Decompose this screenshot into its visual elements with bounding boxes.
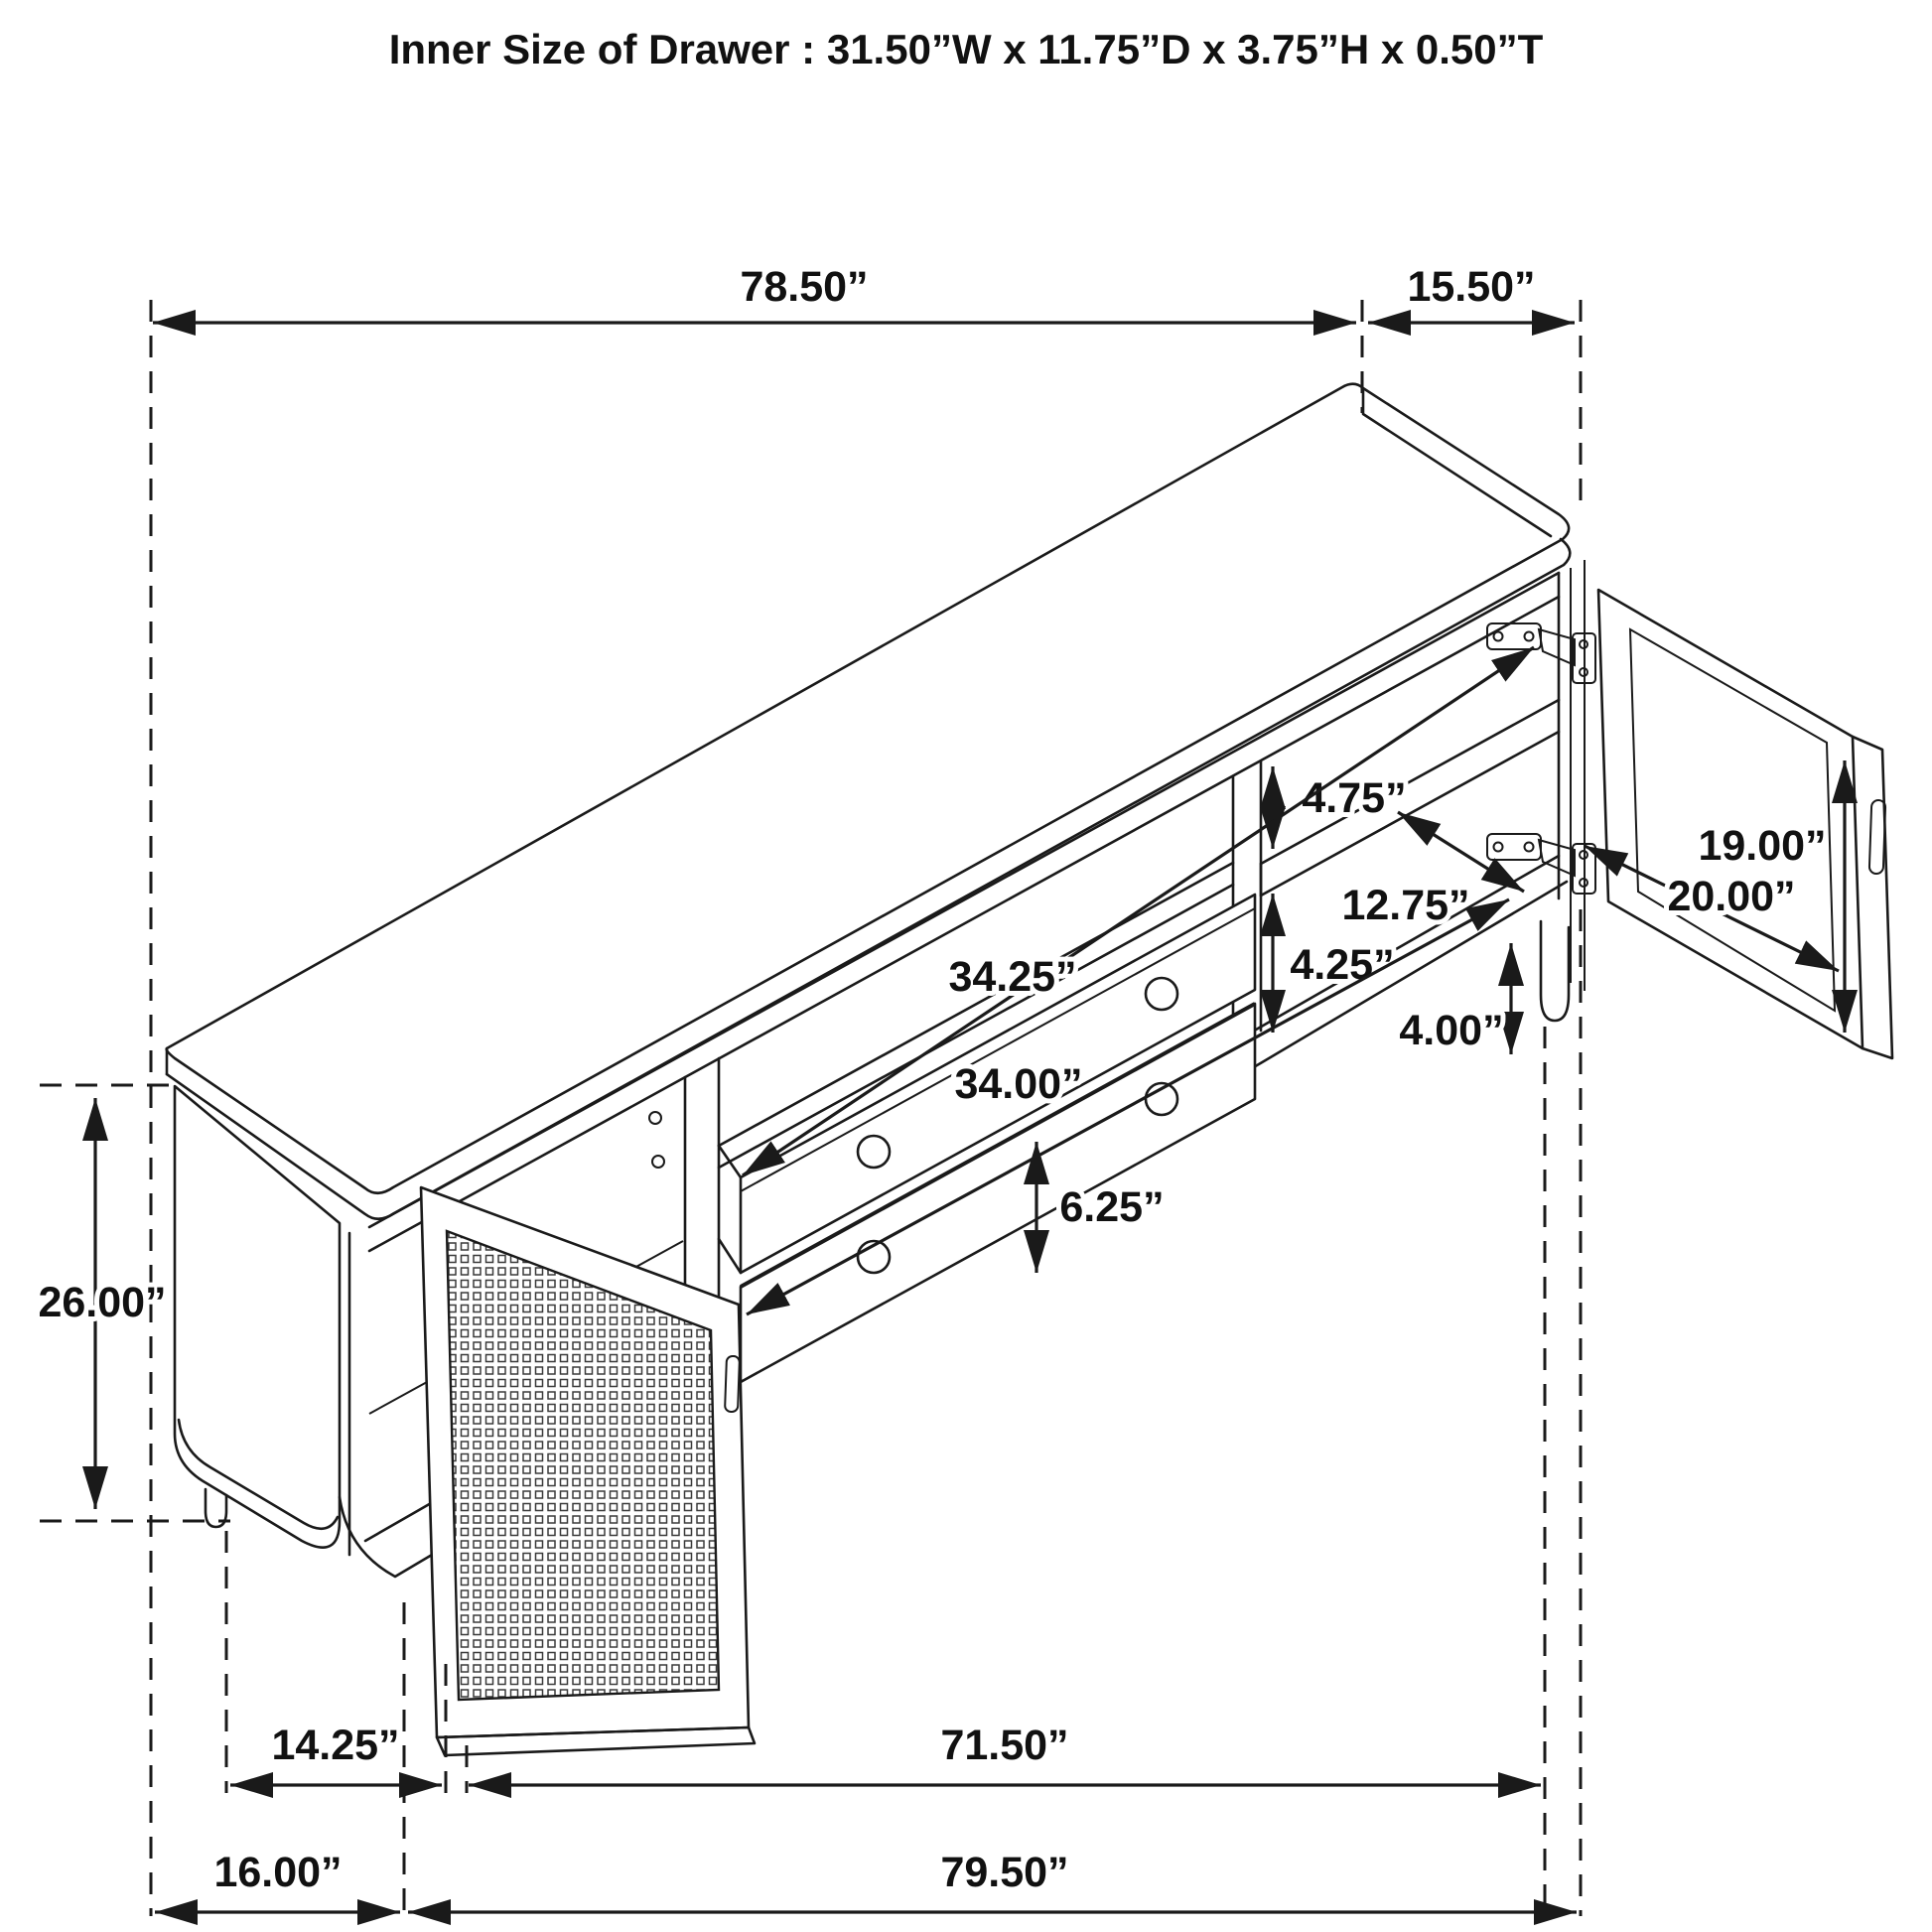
cane-door-open	[421, 1187, 755, 1755]
door-hinge-upper	[1487, 623, 1595, 683]
dim-label-door-width: 20.00”	[1667, 873, 1795, 920]
dim-label-leg-span-side: 14.25”	[271, 1722, 399, 1769]
dim-label-overall-width-base: 79.50”	[940, 1849, 1068, 1896]
dim-label-leg-height: 4.00”	[1399, 1007, 1503, 1054]
dim-label-shelf-depth: 12.75”	[1341, 882, 1469, 929]
shelf-pin-hole	[652, 1156, 664, 1168]
dim-label-upper-shelf-clearance: 4.75”	[1302, 774, 1406, 822]
dim-label-upper-drawer-width: 34.25”	[948, 953, 1076, 1001]
upper-drawer-runner-a	[719, 1146, 741, 1177]
dim-label-overall-depth: 16.00”	[213, 1849, 342, 1896]
dim-label-top-width: 78.50”	[740, 263, 868, 311]
dim-label-door-height: 19.00”	[1698, 822, 1826, 870]
drawing-title: Inner Size of Drawer : 31.50”W x 11.75”D…	[389, 26, 1544, 72]
dim-label-lower-shelf-clearance: 4.25”	[1290, 941, 1394, 989]
dim-label-base-span-front: 71.50”	[940, 1722, 1068, 1769]
right-door-face	[1598, 590, 1863, 1048]
dim-label-drawer-front-height: 6.25”	[1059, 1183, 1164, 1231]
dim-line-lower-drawer-width	[747, 899, 1509, 1314]
upper-drawer-runner-b	[719, 1239, 741, 1273]
dimension-diagram-page: 78.50” 15.50” 26.00” 14.25” 71.50” 16.00…	[0, 0, 1932, 1932]
door-hinge-lower	[1487, 834, 1595, 894]
shelf-pin-hole	[649, 1112, 661, 1124]
dim-label-lower-drawer-width: 34.00”	[954, 1060, 1082, 1108]
front-right-leg	[1541, 921, 1569, 1021]
dim-label-cabinet-height: 26.00”	[38, 1279, 166, 1326]
dim-line-shelf-depth	[1398, 812, 1524, 892]
furniture-dimension-drawing: 78.50” 15.50” 26.00” 14.25” 71.50” 16.00…	[0, 0, 1932, 1932]
dim-label-top-depth: 15.50”	[1407, 263, 1535, 311]
